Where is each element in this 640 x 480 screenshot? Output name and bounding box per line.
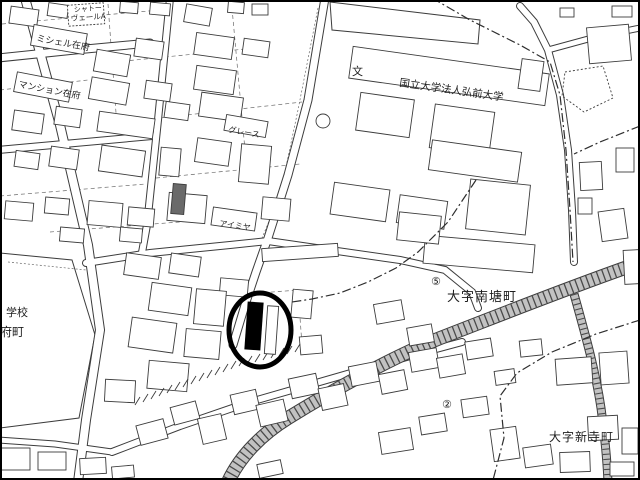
- map-canvas: シャトー ヴェールA ミシェル在府 マンション在府 国立大学法人弘前大学 文 グ…: [0, 0, 640, 480]
- point-5-symbol: ⑤: [431, 276, 441, 288]
- map-background: [0, 0, 640, 480]
- school-partial-label: 学校: [6, 305, 28, 319]
- nantocho-label: 大字南塘町: [447, 289, 517, 304]
- cadastral-map: シャトー ヴェールA ミシェル在府 マンション在府 国立大学法人弘前大学 文 グ…: [0, 0, 640, 480]
- point-2-symbol: ②: [442, 399, 452, 411]
- zaifucho-partial-label: 府町: [0, 324, 24, 339]
- marker-building-fill: [244, 302, 263, 351]
- shinteramachi-label: 大字新寺町: [549, 429, 614, 444]
- school-symbol: 文: [352, 64, 363, 78]
